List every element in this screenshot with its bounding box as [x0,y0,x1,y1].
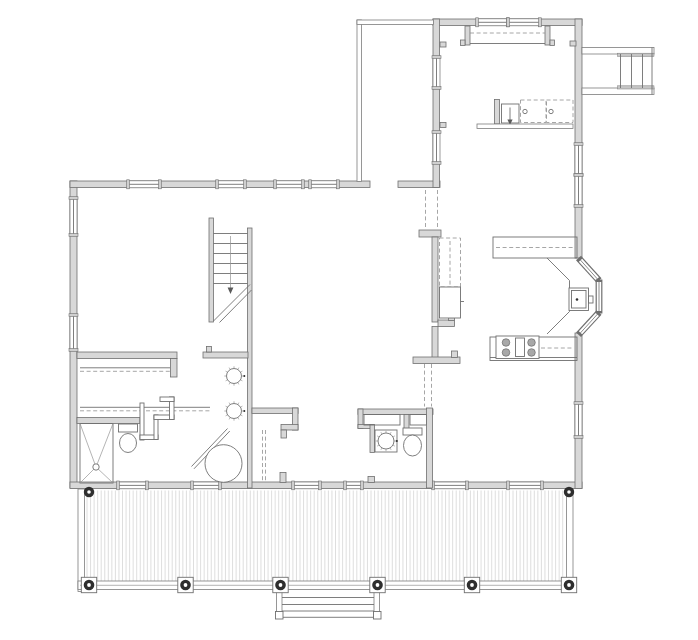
bath-middle [192,347,299,483]
side-deck-rails [357,20,434,182]
porch-deck [78,489,573,592]
windows [69,18,583,490]
upper-closet [461,26,555,46]
exterior-stair-upper-right [582,48,654,95]
floor-plan-drawing [0,0,698,640]
kitchen-sink [569,288,593,311]
pantry-laundry [477,100,573,129]
kitchen-range [496,336,539,359]
powder-room [358,408,433,488]
outer-walls-main-wing [70,181,582,489]
outer-walls-upper-wing [433,19,599,489]
kitchen-tall-cabinets [440,238,465,318]
bath-left [80,397,174,483]
floor-plan-page [0,0,698,640]
porch-steps [276,592,382,620]
